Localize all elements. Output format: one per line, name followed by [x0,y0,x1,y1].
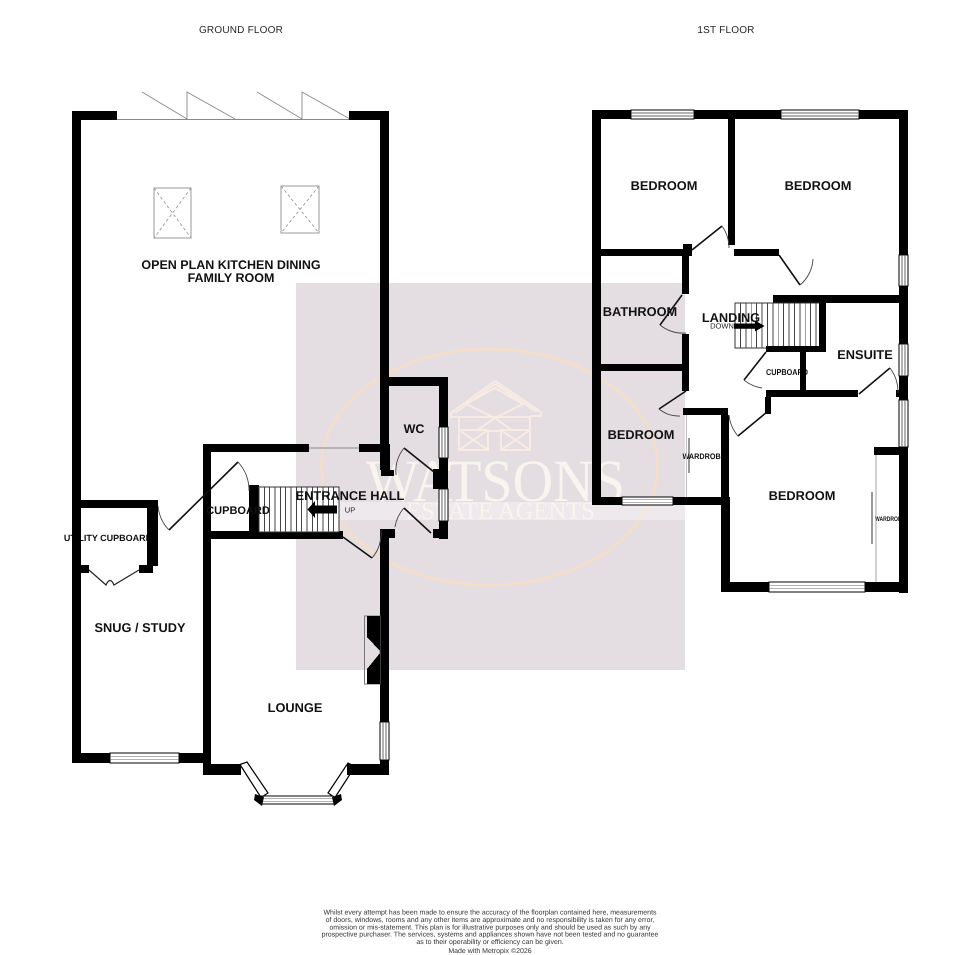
svg-text:ENSUITE: ENSUITE [837,347,893,362]
svg-text:ENTRANCE HALL: ENTRANCE HALL [296,488,405,503]
svg-text:BEDROOM: BEDROOM [785,178,852,193]
svg-text:BEDROOM: BEDROOM [769,488,836,503]
svg-text:FAMILY ROOM: FAMILY ROOM [188,271,275,285]
svg-text:Made with Metropix ©2026: Made with Metropix ©2026 [448,947,531,955]
svg-text:omission or mis-statement. Thi: omission or mis-statement. This plan is … [329,923,651,931]
svg-text:DOWN: DOWN [710,322,734,331]
svg-text:of doors, windows, rooms and a: of doors, windows, rooms and any other i… [326,916,655,924]
svg-text:BATHROOM: BATHROOM [603,304,677,319]
svg-text:LOUNGE: LOUNGE [268,700,323,715]
svg-text:BEDROOM: BEDROOM [631,178,698,193]
svg-text:ESTATE AGENTS: ESTATE AGENTS [406,498,595,525]
svg-text:prospective purchaser. The ser: prospective purchaser. The services, sys… [322,931,659,939]
svg-text:CUPBOARD: CUPBOARD [206,505,270,517]
svg-text:as to their operability or eff: as to their operability or efficiency ca… [416,938,563,946]
svg-text:UP: UP [345,506,355,515]
svg-text:WC: WC [404,422,425,436]
svg-text:1ST FLOOR: 1ST FLOOR [697,25,754,36]
svg-text:Whilst every attempt has been: Whilst every attempt has been made to en… [323,909,657,917]
svg-text:BEDROOM: BEDROOM [608,427,675,442]
svg-text:GROUND FLOOR: GROUND FLOOR [199,25,283,36]
svg-text:SNUG / STUDY: SNUG / STUDY [94,620,185,635]
svg-text:OPEN PLAN KITCHEN DINING: OPEN PLAN KITCHEN DINING [141,258,320,272]
